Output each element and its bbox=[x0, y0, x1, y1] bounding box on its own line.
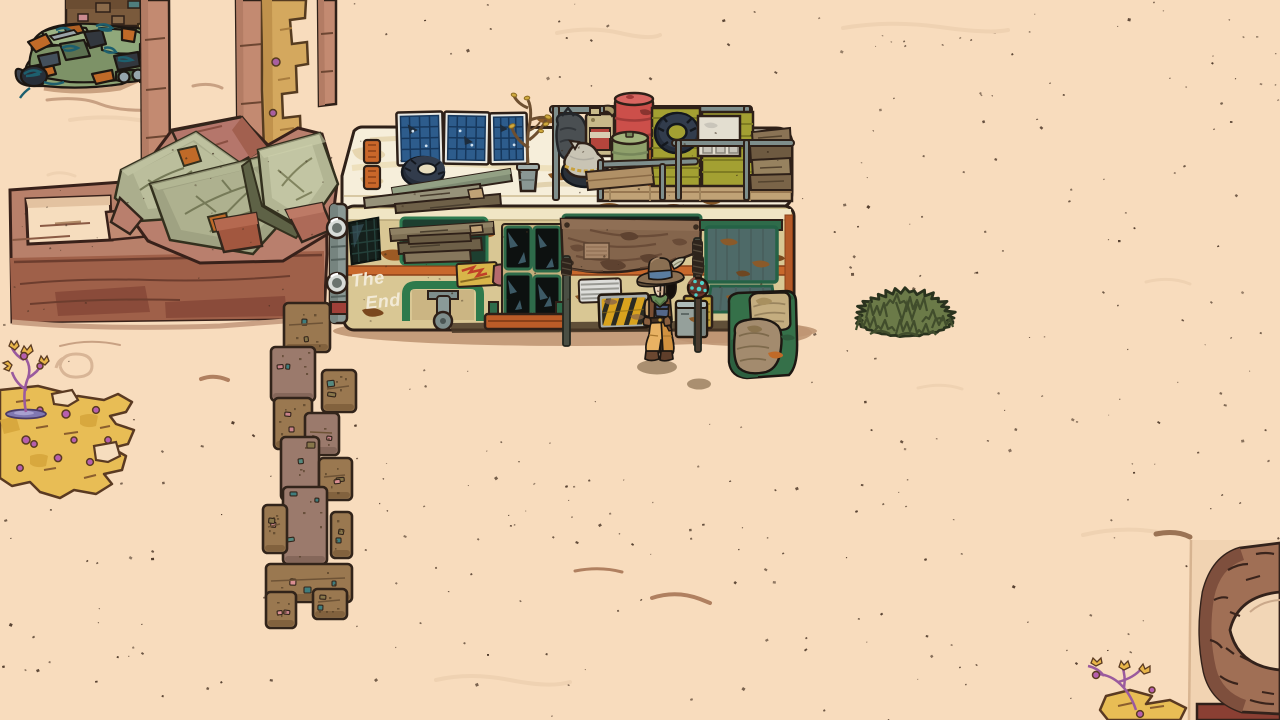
svg-text:The: The bbox=[350, 267, 386, 291]
svg-text:End: End bbox=[364, 289, 402, 313]
